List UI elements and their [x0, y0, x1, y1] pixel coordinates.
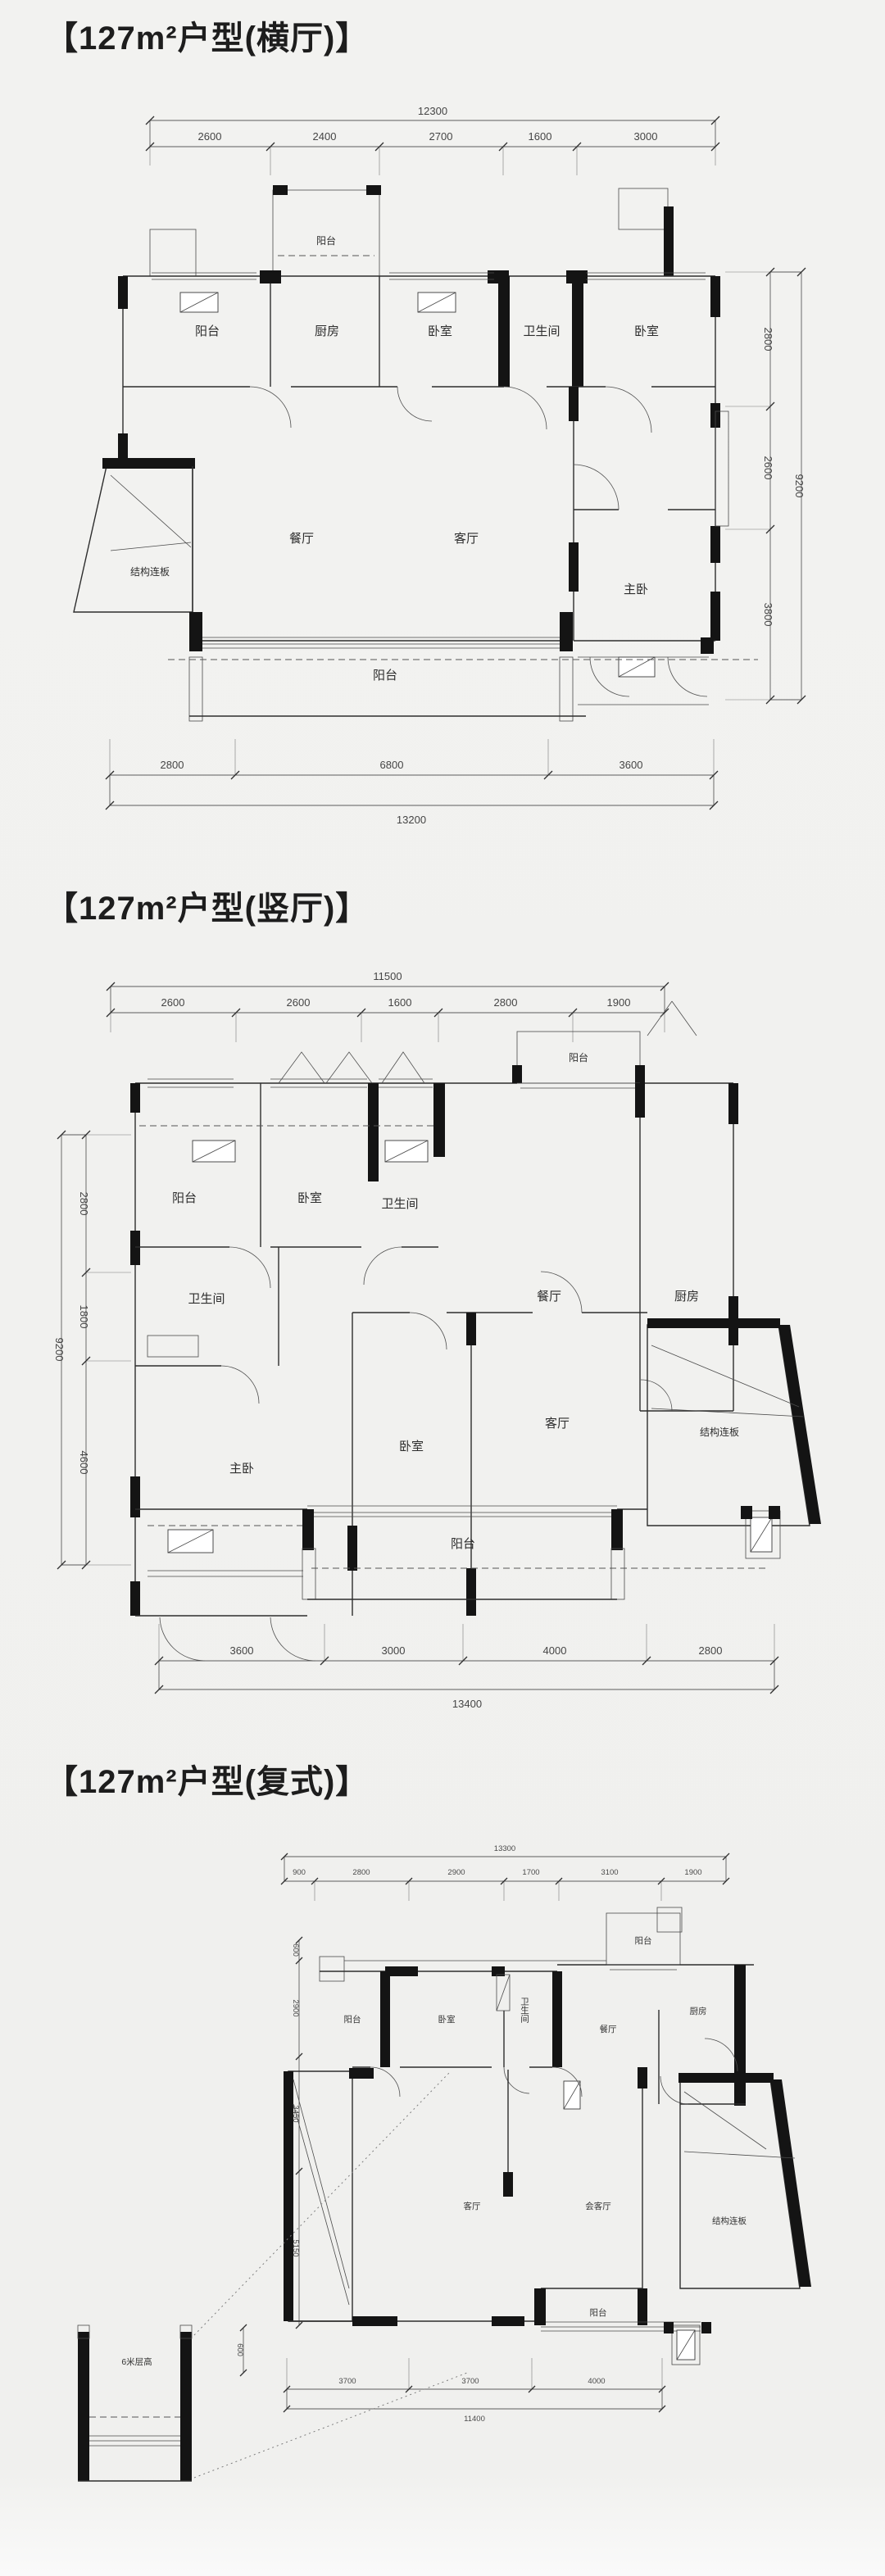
room-label-balcony: 阳台 [172, 1191, 197, 1205]
plan3-dims-top: 13300 900 2800 2900 1700 3100 1900 [281, 1844, 729, 1901]
floorplan-page: 【127m²户型(横厅)】 12300 2600 2400 2700 1600 … [0, 0, 885, 2576]
room-label-slab: 结构连板 [130, 565, 170, 578]
plan2-dims-bottom: 3600 3000 4000 2800 13400 [155, 1624, 778, 1710]
dim-bottom-seg: 6800 [380, 759, 404, 771]
room-label-master: 主卧 [624, 583, 648, 596]
dim-top-seg: 2700 [429, 130, 453, 143]
plan1-walls [74, 185, 758, 721]
dim-bottom-seg: 3700 [338, 2377, 356, 2386]
room-label-bedroom: 卧室 [438, 2014, 456, 2025]
dim-bottom-seg: 2800 [161, 759, 184, 771]
dim-left-seg: 600 [291, 1943, 300, 1957]
room-label-slab: 结构连板 [712, 2215, 747, 2226]
plan2-room-labels: 阳台 卧室 卫生间 阳台 餐厅 厨房 卫生间 主卧 卧室 客厅 结构连板 阳台 [172, 1051, 739, 1551]
room-label-master: 主卧 [229, 1462, 254, 1476]
plan3-walls [78, 1907, 811, 2481]
plan2-dims-left: 2800 1800 4600 9200 [53, 1131, 131, 1569]
dim-right-seg: 2800 [762, 328, 774, 351]
section-title-hengting: 【127m²户型(横厅)】 [45, 11, 369, 59]
dim-top-seg: 2600 [161, 996, 185, 1009]
dim-bottom-total: 11400 [464, 2415, 485, 2424]
room-label-dining: 餐厅 [600, 2024, 617, 2034]
room-label-bedroom: 卧室 [297, 1191, 322, 1205]
room-label-balcony: 阳台 [195, 324, 220, 338]
room-label-dining: 餐厅 [537, 1290, 561, 1304]
room-label-balcony-top: 阳台 [569, 1051, 588, 1064]
dim-top-seg: 2400 [313, 130, 337, 143]
room-label-balcony: 阳台 [344, 2014, 361, 2025]
room-label-balcony-bottom: 阳台 [590, 2307, 607, 2318]
floorplan-hengting: 12300 2600 2400 2700 1600 3000 2800 2600… [45, 84, 865, 874]
plan1-dims-bottom: 2800 6800 3600 13200 [106, 739, 718, 826]
dim-top-total: 11500 [373, 970, 402, 982]
dim-top-seg: 2900 [447, 1868, 465, 1877]
room-label-bathroom: 卫生间 [520, 1997, 529, 2023]
dim-bottom-seg: 3700 [461, 2377, 479, 2386]
dim-right-seg: 3800 [762, 603, 774, 627]
dim-right-total: 9200 [793, 474, 806, 498]
dim-left-total: 9200 [53, 1338, 66, 1362]
dim-top-seg: 2600 [198, 130, 222, 143]
room-label-void-note: 6米层高 [121, 2356, 152, 2367]
dim-top-seg: 1700 [522, 1868, 539, 1877]
dim-left-seg: 2900 [291, 1999, 300, 2016]
dim-top-total: 13300 [494, 1844, 515, 1853]
dim-bottom-total: 13200 [397, 814, 426, 826]
dim-top-seg: 1900 [607, 996, 631, 1009]
plan2-walls [130, 1001, 821, 1661]
dim-bottom-seg: 4000 [588, 2377, 605, 2386]
dim-top-seg: 1600 [388, 996, 412, 1009]
room-label-bathroom: 卫生间 [523, 324, 560, 338]
dim-bottom-seg: 3600 [230, 1644, 254, 1657]
dim-top-total: 12300 [418, 105, 447, 117]
room-label-bedroom: 卧室 [399, 1440, 424, 1454]
dim-left-small: 600 [235, 2343, 244, 2356]
room-label-living: 客厅 [454, 532, 479, 546]
plan1-dims-right: 2800 2600 3800 9200 [725, 268, 806, 704]
plan3-dims-bottom: 3700 3700 4000 11400 [284, 2358, 665, 2424]
dim-top-seg: 3100 [601, 1868, 618, 1877]
dim-top-seg: 2600 [287, 996, 311, 1009]
room-label-reception: 会客厅 [585, 2201, 611, 2211]
dim-bottom-seg: 4000 [543, 1644, 567, 1657]
room-label-bedroom: 卧室 [428, 324, 452, 338]
dim-top-seg: 2800 [494, 996, 518, 1009]
dim-left-seg: 1800 [78, 1305, 90, 1329]
room-label-kitchen: 厨房 [690, 2006, 707, 2016]
room-label-kitchen: 厨房 [674, 1290, 699, 1304]
dim-right-seg: 2600 [762, 456, 774, 480]
dim-bottom-seg: 3000 [382, 1644, 406, 1657]
dim-top-seg: 900 [293, 1868, 306, 1877]
plan1-section-markers [180, 293, 655, 677]
dim-left-seg: 2800 [78, 1192, 90, 1216]
room-label-slab: 结构连板 [700, 1426, 739, 1438]
section-title-fushi: 【127m²户型(复式)】 [45, 1755, 369, 1803]
dim-bottom-seg: 3600 [619, 759, 643, 771]
dim-top-seg: 1900 [684, 1868, 701, 1877]
room-label-balcony-bottom: 阳台 [451, 1537, 475, 1551]
dim-top-seg: 1600 [529, 130, 552, 143]
room-label-bathroom: 卫生间 [188, 1292, 225, 1306]
room-label-bedroom: 卧室 [634, 324, 659, 338]
dim-bottom-seg: 2800 [699, 1644, 723, 1657]
section-title-shuting: 【127m²户型(竖厅)】 [45, 882, 369, 929]
dim-bottom-total: 13400 [452, 1698, 482, 1710]
plan3-void-diagram [78, 2325, 192, 2481]
plan3-room-labels: 阳台 阳台 卧室 卫生间 餐厅 厨房 客厅 会客厅 结构连板 阳台 6米层高 [121, 1935, 747, 2367]
plan1-dims-top: 12300 2600 2400 2700 1600 3000 [146, 105, 719, 175]
room-label-balcony-small: 阳台 [316, 234, 336, 247]
dim-left-seg: 4600 [78, 1451, 90, 1475]
room-label-living: 客厅 [545, 1417, 570, 1431]
room-label-dining: 餐厅 [289, 532, 314, 546]
room-label-living: 客厅 [464, 2201, 481, 2211]
floorplan-shuting: 11500 2600 2600 1600 2800 1900 2800 1800… [25, 952, 836, 1726]
dim-top-seg: 2800 [352, 1868, 370, 1877]
room-label-balcony-top: 阳台 [635, 1935, 652, 1946]
room-label-kitchen: 厨房 [315, 324, 339, 338]
room-label-balcony-bottom: 阳台 [373, 669, 397, 683]
room-label-bathroom: 卫生间 [381, 1197, 418, 1211]
floorplan-fushi: 13300 900 2800 2900 1700 3100 1900 600 2… [33, 1834, 852, 2571]
dim-top-seg: 3000 [634, 130, 658, 143]
